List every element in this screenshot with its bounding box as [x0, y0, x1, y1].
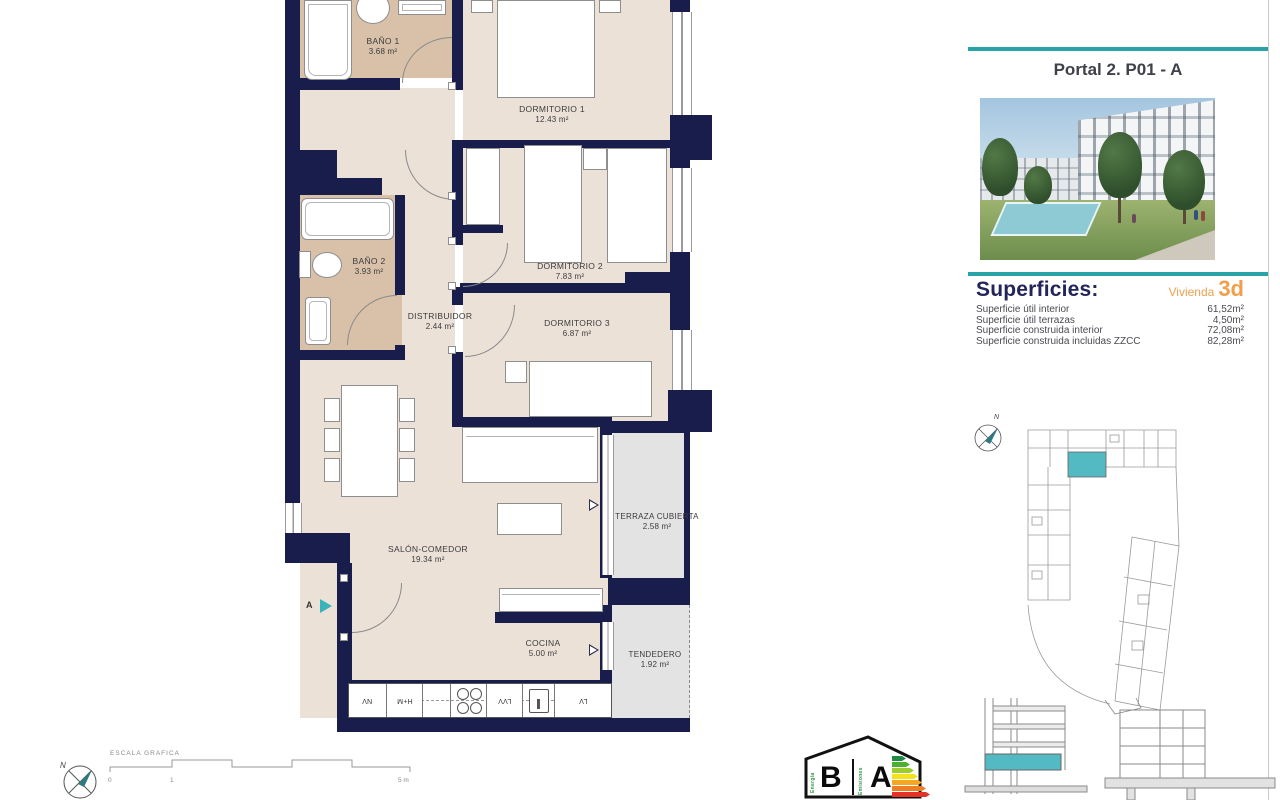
washbasin — [398, 0, 446, 15]
superficies-heading: Superficies: — [976, 278, 1099, 302]
bed — [529, 361, 652, 417]
room-label-distribuidor: DISTRIBUIDOR2.44 m² — [375, 311, 505, 332]
superficies-block: Superficies: Vivienda 3d Superficie útil… — [976, 278, 1244, 347]
wall — [495, 612, 605, 623]
wall — [298, 350, 405, 360]
counter-cell — [423, 684, 451, 717]
scale-tick-0: 0 — [108, 777, 112, 784]
door-jamb — [448, 282, 456, 290]
sink-icon — [529, 689, 549, 713]
energy-bar-6 — [892, 786, 926, 791]
scale-bar-title: ESCALA GRAFICA — [110, 750, 180, 757]
door-direction-icon — [589, 499, 599, 511]
tree — [1024, 166, 1052, 204]
wall — [452, 352, 463, 427]
nightstand — [471, 0, 493, 13]
dining-table — [341, 385, 398, 497]
wall — [285, 0, 300, 503]
floor-plan: NV H+M LVV LV BAÑO 13.68 m² DORMITORIO 1… — [0, 0, 760, 800]
kitchen-appliance-row: NV H+M LVV LV — [348, 683, 612, 718]
coffee-table — [497, 503, 562, 535]
section-marker-label: A — [306, 600, 313, 610]
room-label-salon: SALÓN-COMEDOR19.34 m² — [363, 544, 493, 565]
terrace-sliding-door — [602, 435, 614, 575]
wall — [337, 178, 382, 195]
wall — [285, 533, 350, 563]
room-label-dormitorio2: DORMITORIO 27.83 m² — [505, 261, 635, 282]
window — [285, 503, 302, 533]
floor-terraza — [608, 433, 690, 578]
scale-tick-1: 1 — [170, 777, 174, 784]
compass-north-label: N — [60, 761, 66, 770]
wall — [460, 283, 627, 293]
washer-cell: LVV — [487, 684, 523, 717]
vivienda-label: Vivienda — [1168, 285, 1214, 299]
room-label-bano2: BAÑO 23.93 m² — [304, 256, 434, 277]
wardrobe — [466, 148, 500, 225]
superficies-row: Superficie construida incluidas ZZCC82,2… — [976, 337, 1244, 348]
wall — [670, 293, 690, 330]
wall — [337, 718, 612, 732]
bed — [607, 148, 667, 263]
building-render-photo — [980, 98, 1215, 260]
person — [1201, 211, 1205, 221]
energy-rating-logo: Energía B Emisiones A — [796, 731, 930, 800]
nightstand — [583, 148, 607, 170]
room-label-terraza: TERRAZA CUBIERTA2.58 m² — [592, 512, 722, 533]
dishwasher-cell: LV — [555, 684, 611, 717]
wall — [285, 150, 337, 195]
wall — [670, 0, 690, 12]
siteplan-north-label: N — [994, 414, 1000, 421]
chair — [324, 398, 340, 422]
scale-bar: ESCALA GRAFICA 0 1 5 m — [100, 746, 430, 786]
wall — [608, 718, 690, 732]
superficies-row: Superficie útil interior61,52m² — [976, 305, 1244, 316]
section-drawings — [955, 698, 1280, 800]
energy-letter-b: B — [820, 763, 842, 793]
wall — [460, 417, 612, 427]
energy-bar-5 — [892, 780, 922, 785]
door-jamb — [340, 633, 348, 641]
energy-text-right: Emisiones — [858, 767, 864, 795]
room-label-dormitorio3: DORMITORIO 36.87 m² — [512, 318, 642, 339]
sink-cell — [523, 684, 555, 717]
bed — [497, 0, 595, 98]
door-direction-icon — [589, 644, 599, 656]
wall — [684, 432, 690, 578]
wall — [395, 195, 405, 295]
superficies-row: Superficie construida interior72,08m² — [976, 326, 1244, 337]
door-jamb — [340, 574, 348, 582]
window — [672, 330, 692, 390]
room-label-tendedero: TENDEDERO1.92 m² — [590, 650, 720, 671]
vivienda-code: 3d — [1218, 279, 1244, 299]
wall — [670, 115, 712, 160]
site-plan: N — [958, 405, 1268, 710]
window — [672, 12, 692, 115]
energy-bar-7 — [892, 792, 930, 797]
door-jamb — [448, 346, 456, 354]
pool — [990, 202, 1101, 236]
room-label-bano1: BAÑO 13.68 m² — [318, 36, 448, 57]
door-jamb — [448, 237, 456, 245]
person — [1132, 214, 1136, 223]
person — [1194, 210, 1198, 220]
fridge-cell: NV — [349, 684, 387, 717]
nightstand — [505, 361, 527, 383]
window — [672, 168, 692, 252]
door-jamb — [448, 192, 456, 200]
bed — [524, 145, 582, 263]
energy-letter-a: A — [870, 763, 892, 793]
nightstand — [599, 0, 621, 13]
chair — [399, 458, 415, 482]
chair — [324, 428, 340, 452]
wall — [608, 578, 690, 605]
wall — [608, 421, 688, 433]
header-rule — [968, 47, 1268, 51]
room-label-dormitorio1: DORMITORIO 112.43 m² — [487, 104, 617, 125]
wall — [670, 252, 690, 272]
page-border-line — [1268, 0, 1269, 800]
wall — [463, 225, 503, 233]
hob-icon — [457, 688, 481, 714]
hob-cell — [451, 684, 487, 717]
tree — [1098, 132, 1142, 198]
energy-bar-4 — [892, 774, 918, 779]
chair — [399, 428, 415, 452]
bathtub — [301, 198, 394, 240]
section-marker-icon — [320, 599, 332, 613]
oven-microwave-cell: H+M — [387, 684, 423, 717]
energy-text-left: Energía — [810, 773, 816, 793]
energy-bar-3 — [892, 768, 914, 773]
door-jamb — [448, 82, 456, 90]
washbasin — [305, 297, 331, 345]
scale-tick-5: 5 m — [398, 777, 409, 784]
chair — [324, 458, 340, 482]
wall — [670, 160, 690, 168]
tree — [1163, 150, 1205, 210]
kitchen-counter — [499, 588, 603, 612]
page-title: Portal 2. P01 - A — [968, 60, 1268, 80]
chair — [399, 398, 415, 422]
sofa — [462, 427, 598, 483]
tree — [982, 138, 1018, 196]
wall — [452, 0, 463, 90]
